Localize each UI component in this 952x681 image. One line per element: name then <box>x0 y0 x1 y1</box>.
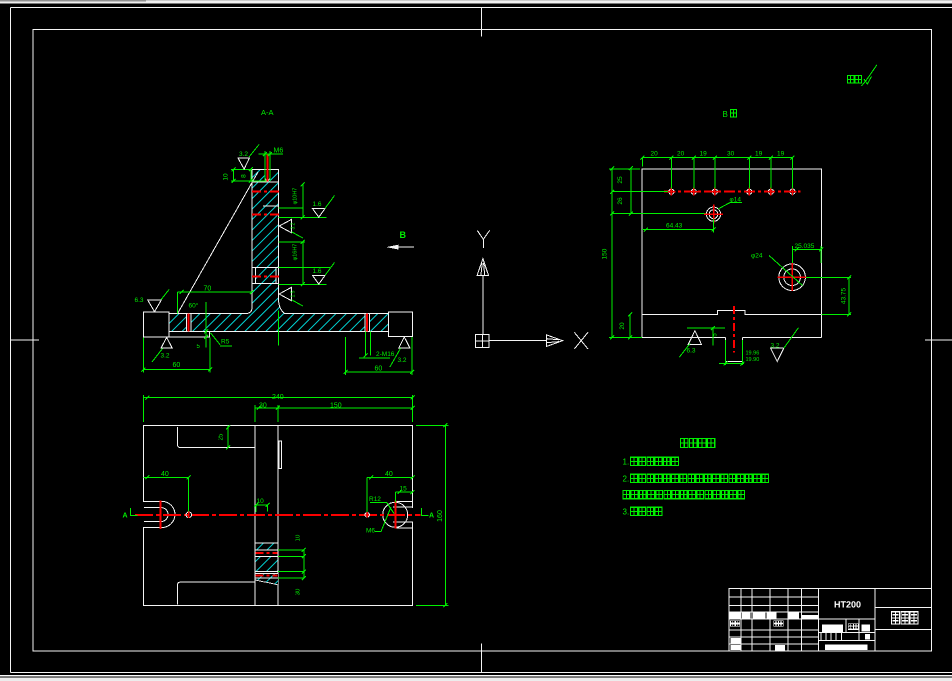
svg-text:20: 20 <box>619 322 626 330</box>
svg-text:1.6: 1.6 <box>313 201 322 208</box>
svg-text:1.: 1. <box>623 458 630 467</box>
svg-text:8: 8 <box>241 174 248 178</box>
svg-text:1.6: 1.6 <box>313 268 322 275</box>
svg-text:HT200: HT200 <box>834 599 861 609</box>
svg-text:R12: R12 <box>369 496 381 503</box>
svg-text:15: 15 <box>400 486 408 493</box>
svg-text:30: 30 <box>259 402 267 409</box>
svg-text:40: 40 <box>161 471 169 478</box>
svg-text:φ24: φ24 <box>751 253 763 260</box>
svg-text:A: A <box>123 513 128 520</box>
svg-text:1.5: 1.5 <box>291 290 297 297</box>
svg-text:30: 30 <box>296 588 302 595</box>
svg-text:10: 10 <box>223 173 230 181</box>
svg-text:19.96: 19.96 <box>746 351 760 357</box>
svg-text:2.: 2. <box>623 475 630 484</box>
svg-text:19: 19 <box>755 151 763 158</box>
svg-text:3.2: 3.2 <box>398 357 407 364</box>
svg-text:6.3: 6.3 <box>135 297 144 304</box>
svg-text:φ14: φ14 <box>730 197 742 204</box>
svg-text:10: 10 <box>296 534 302 541</box>
svg-text:20: 20 <box>677 151 685 158</box>
svg-text:19: 19 <box>777 151 785 158</box>
svg-text:160: 160 <box>437 510 444 522</box>
svg-text:40: 40 <box>385 471 393 478</box>
svg-text:43.75: 43.75 <box>841 287 848 304</box>
svg-text:150: 150 <box>602 248 609 259</box>
svg-text:19: 19 <box>700 151 708 158</box>
svg-text:3.2: 3.2 <box>161 353 170 360</box>
svg-text:25.035: 25.035 <box>795 243 815 250</box>
svg-text:R5: R5 <box>221 339 230 346</box>
svg-text:70: 70 <box>204 286 212 293</box>
svg-text:60°: 60° <box>189 302 199 310</box>
svg-text:3.2: 3.2 <box>771 343 780 350</box>
svg-text:3.: 3. <box>623 508 630 517</box>
svg-text:150: 150 <box>330 402 342 409</box>
svg-text:A: A <box>429 513 434 520</box>
svg-text:φ16H7: φ16H7 <box>293 244 299 261</box>
svg-text:M6: M6 <box>274 148 284 155</box>
svg-text:19.90: 19.90 <box>746 357 760 363</box>
svg-text:26: 26 <box>617 197 624 205</box>
svg-text:3.2: 3.2 <box>291 222 297 229</box>
svg-text:240: 240 <box>272 394 284 401</box>
svg-text:60: 60 <box>173 362 181 369</box>
svg-text:6.3: 6.3 <box>687 348 696 355</box>
svg-text:25: 25 <box>219 433 225 440</box>
svg-text:25: 25 <box>617 176 624 184</box>
svg-text:3.2: 3.2 <box>239 151 248 158</box>
svg-text:A-A: A-A <box>261 108 274 117</box>
svg-text:2-M16: 2-M16 <box>376 351 395 358</box>
svg-text:64.43: 64.43 <box>666 223 683 230</box>
svg-text:60: 60 <box>375 366 383 373</box>
svg-text:10: 10 <box>257 498 265 505</box>
svg-text:B: B <box>400 230 407 240</box>
svg-text:20: 20 <box>651 151 659 158</box>
svg-text:M6: M6 <box>366 528 375 535</box>
svg-text:30: 30 <box>727 151 735 158</box>
svg-text:B: B <box>723 110 728 119</box>
svg-text:φ10H7: φ10H7 <box>293 188 299 205</box>
